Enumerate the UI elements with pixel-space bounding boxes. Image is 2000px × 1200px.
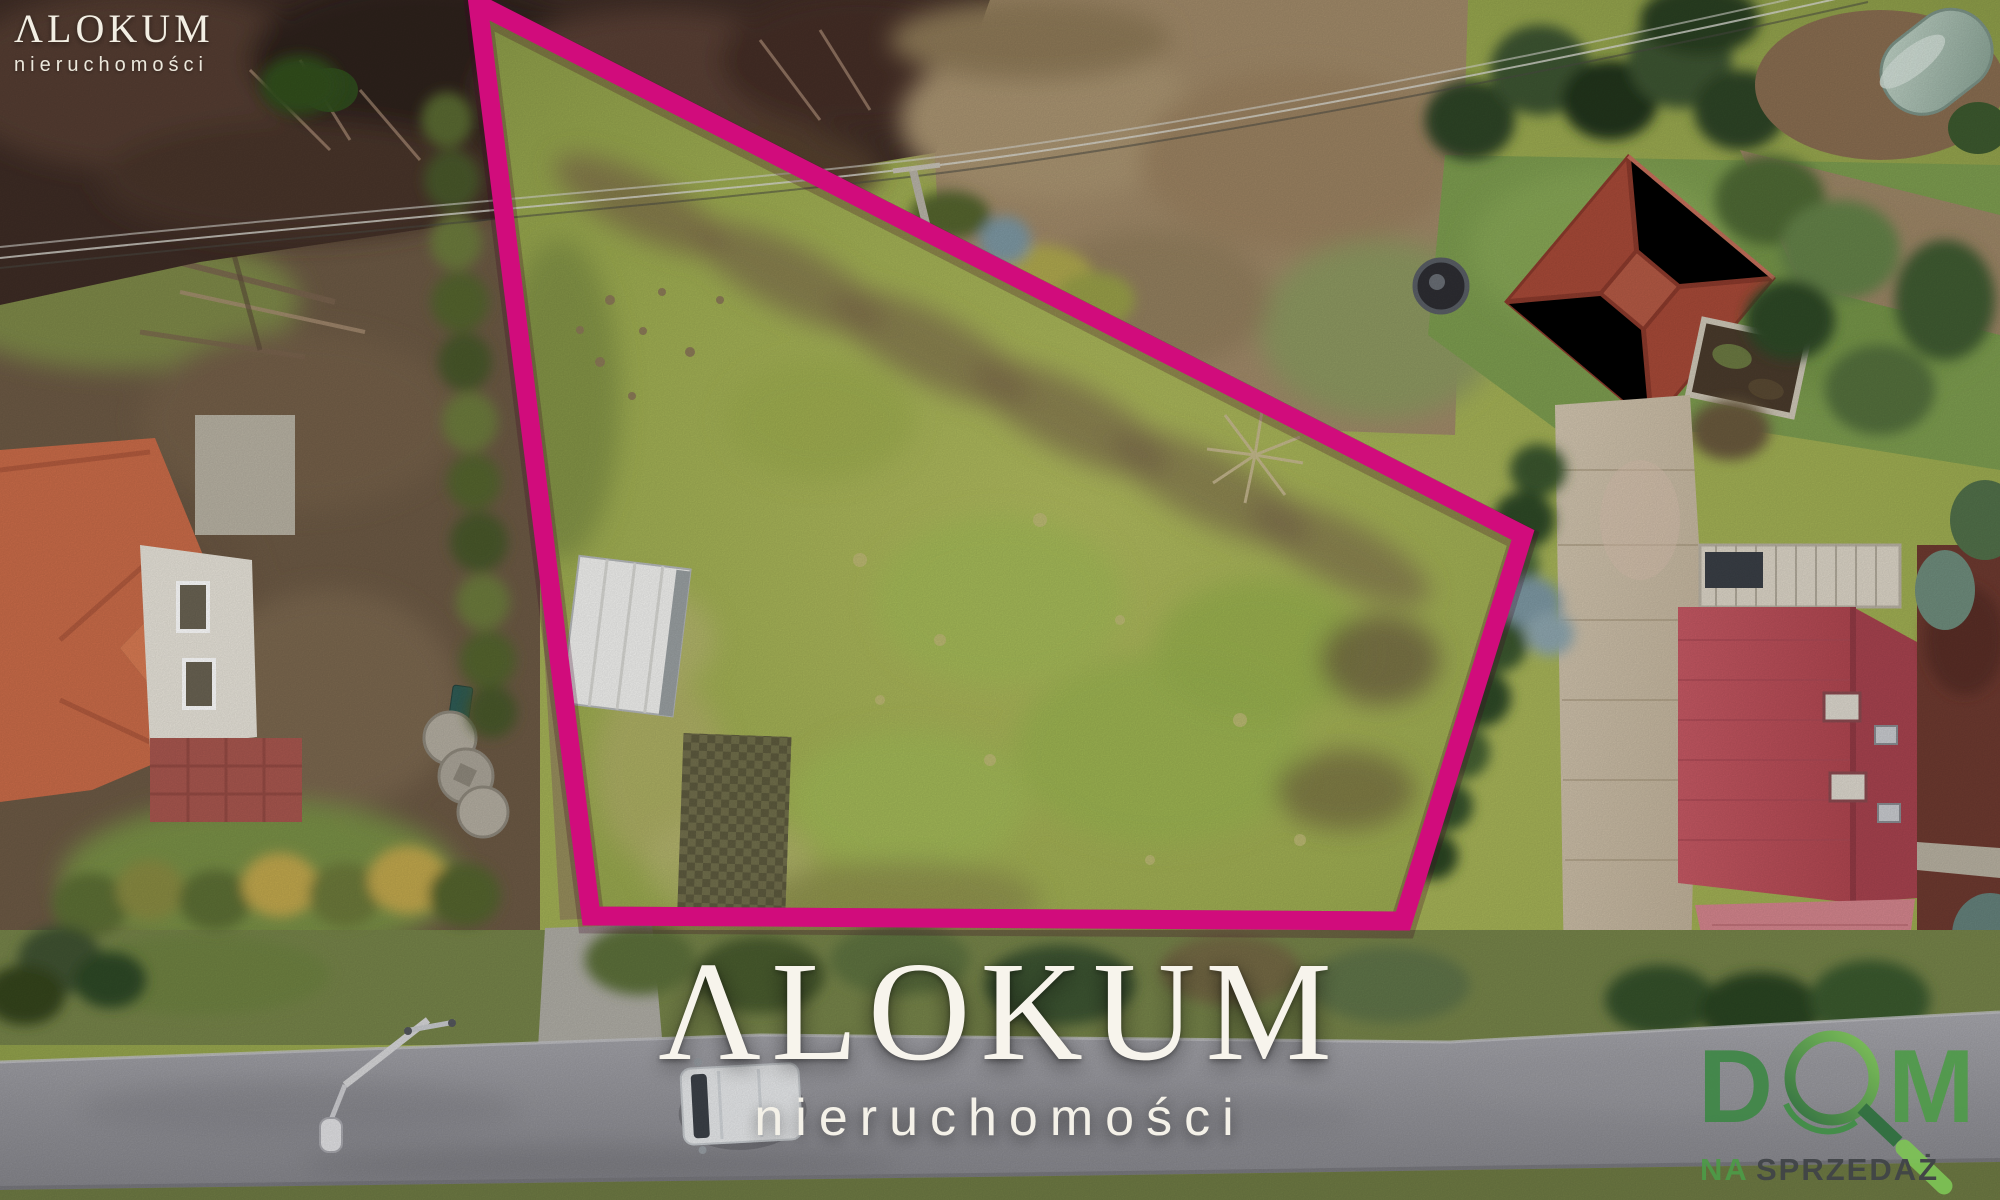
aerial-photo-canvas: D M NA SPRZEDAŻ ΛLOKUM nieruchomości ΛLO… (0, 0, 2000, 1200)
center-watermark-name: ΛLOKUM (0, 940, 2000, 1082)
agency-caption-prefix: NA (1700, 1152, 1749, 1187)
corner-logo-name: ΛLOKUM (14, 8, 214, 50)
agency-caption-word: SPRZEDAŻ (1756, 1152, 1939, 1187)
center-watermark-subtitle: nieruchomości (0, 1088, 2000, 1148)
corner-logo-subtitle: nieruchomości (14, 54, 214, 77)
center-watermark: ΛLOKUM nieruchomości (0, 940, 2000, 1148)
corner-logo: ΛLOKUM nieruchomości (14, 8, 214, 77)
